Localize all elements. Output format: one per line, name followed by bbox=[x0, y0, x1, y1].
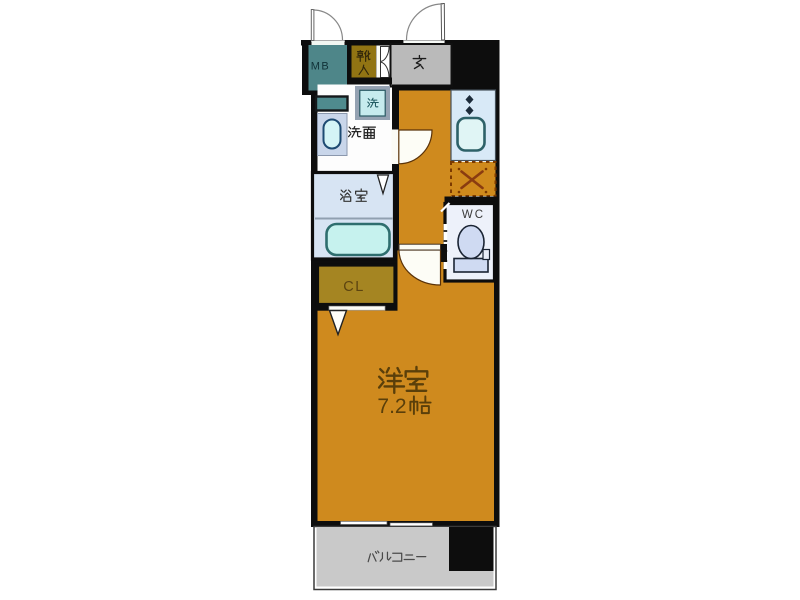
svg-text:CL: CL bbox=[343, 279, 365, 295]
svg-text:MB: MB bbox=[311, 61, 331, 73]
svg-text:WC: WC bbox=[462, 209, 485, 221]
svg-text:7.2: 7.2 bbox=[377, 395, 406, 418]
